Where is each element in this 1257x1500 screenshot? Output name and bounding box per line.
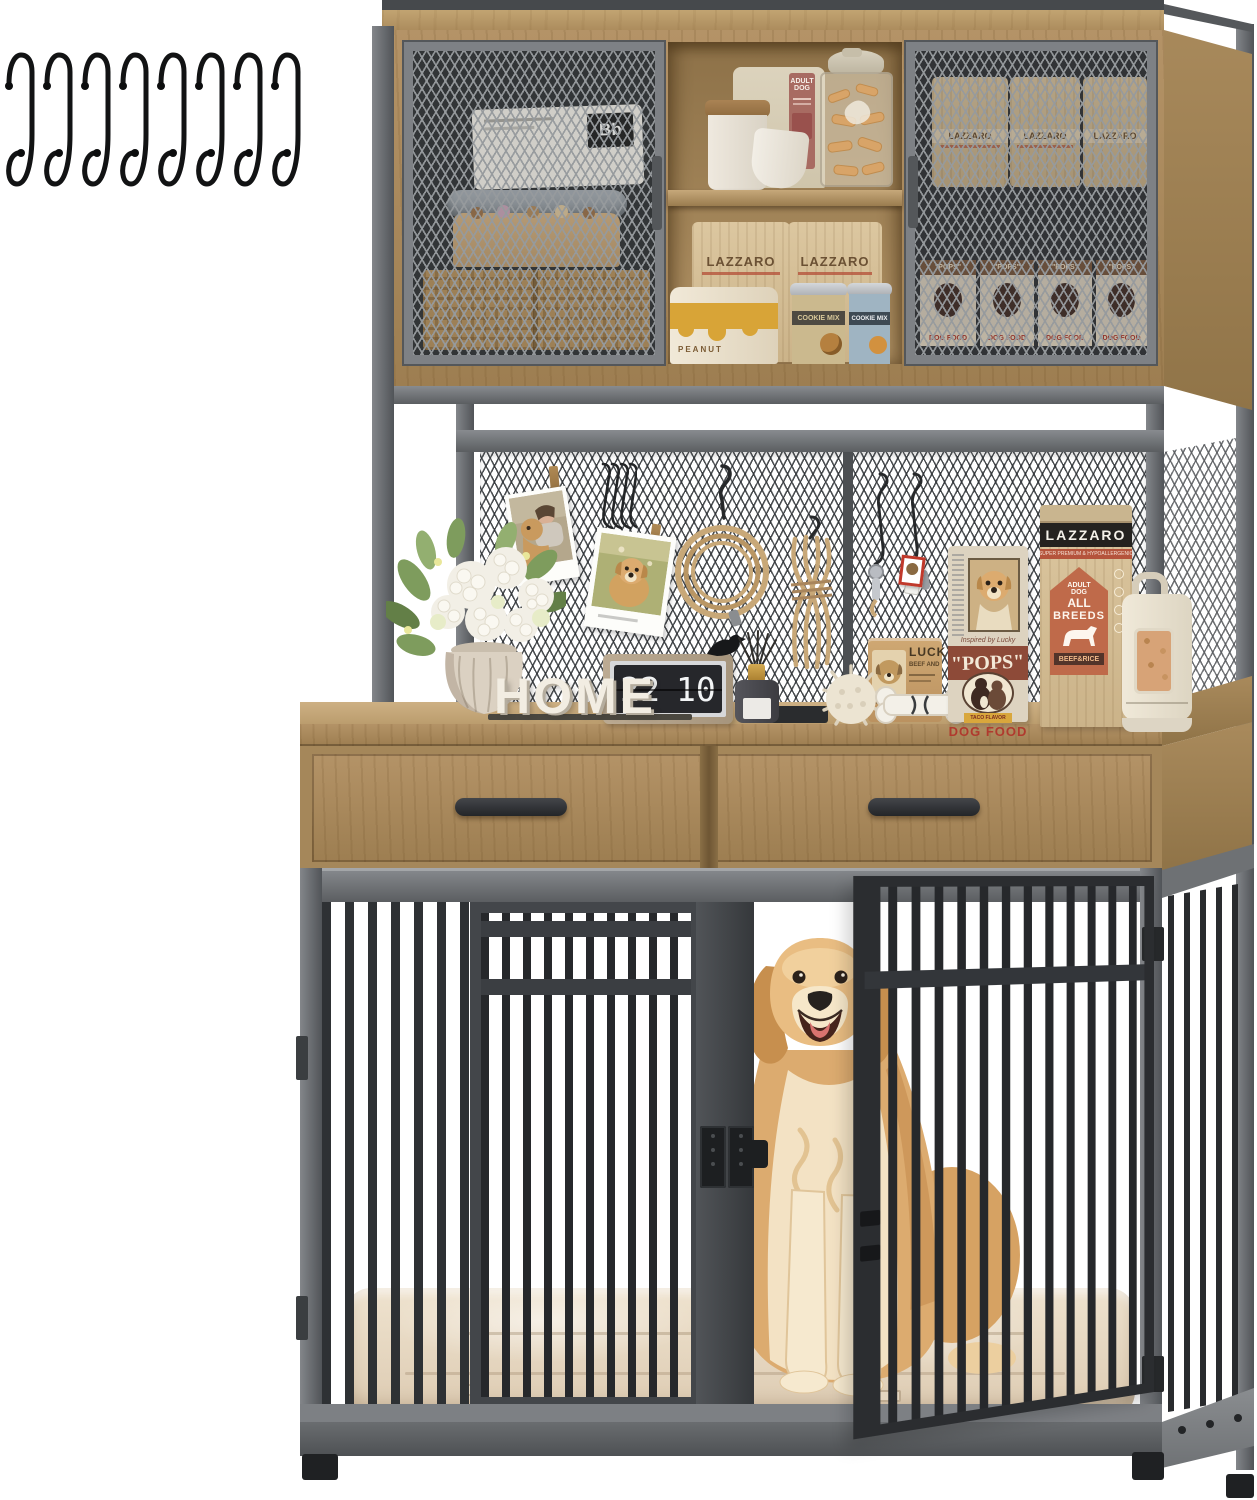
jar-glass-body [820,72,893,187]
diffuser-label [743,698,771,719]
lucky-can-line: BEEF AND [909,662,939,668]
crate-bottom-rail [300,1422,1162,1456]
bag-badge: ADULT DOG ALL BREEDS BEEF&RICE [1050,567,1108,675]
badge-line3: ALL [1050,596,1108,610]
crate-left-post [300,868,322,1456]
photo-caption-scribble [598,614,638,623]
right-door-handle [908,156,918,228]
kraft-bag-2-rule [798,272,872,275]
cubby-shelf [668,190,902,206]
tin2-label: COOKIE MIX [849,312,890,325]
badge-line4: BREEDS [1050,610,1108,622]
pops-can-photo [968,558,1020,632]
drawer-gap [700,746,718,870]
home-sign: HOME [494,674,694,720]
crate-foot-right [1132,1452,1164,1480]
badge-flavor: BEEF&RICE [1059,656,1099,663]
left-door-frame [404,42,664,364]
wire-hooks-cluster [595,460,637,538]
badge-line2: DOG [1050,589,1108,596]
badge-line1: ADULT [1050,582,1108,589]
bag-top-fold [1040,505,1132,523]
dog-food-bag: LAZZARO SUPER PREMIUM & HYPOALLERGENIC A… [1040,505,1132,727]
left-hinge-tab [296,1036,308,1080]
tin1-label: COOKIE MIX [792,311,845,325]
kraft-bag-1-rule [702,272,780,275]
bag-brand: LAZZARO [1046,527,1127,543]
treat-label-2: DOG [789,85,815,92]
mini-card-art [906,562,919,575]
latch-screw [711,1134,715,1138]
open-door-latch-knob [860,1210,880,1227]
hutch-top-board [382,10,1164,32]
pops-can-caption: Inspired by Lucky [952,634,1024,646]
photo-2-image [591,533,671,616]
treat-label-1: ADULT [789,73,815,85]
drawer-left-handle [455,798,567,816]
s-hooks-row [4,50,314,195]
side-rail-screw [1178,1426,1186,1434]
peanut-label: PEANUT [678,345,723,354]
pops-can-type: DOG FOOD [948,723,1028,739]
tin2-body: COOKIE MIX [849,294,890,364]
dog-front-leg-left [786,1190,826,1382]
pops-can: Inspired by Lucky "POPS" TACO FLAVOR DOG… [948,546,1028,722]
latch-plate-left [700,1126,726,1188]
hutch-right-side-panel [1164,10,1252,430]
key-hooks [862,470,940,620]
kraft-bag-1-brand: LAZZARO [692,253,790,269]
dispenser-seam [1126,702,1188,704]
latch-screw [739,1148,743,1152]
closed-door-crossbar-1 [481,921,691,937]
cookie-tin-1: COOKIE MIX [790,283,847,364]
bag-sub-band: SUPER PREMIUM & HYPOALLERGENIC [1040,549,1132,559]
latch-screw [739,1134,743,1138]
treat-label-line [793,98,811,100]
tin2-cookie [869,336,887,354]
mini-photo-card [898,555,925,588]
crate-side-bars [1168,884,1238,1412]
pegboard-top-rail [456,430,1164,452]
jar-knob [842,48,862,57]
rope-leash-on-hook [668,462,778,637]
peanut-jar: PEANUT [670,287,778,364]
hutch-right-door: LAZZARO LAZZARO LAZZARO "POPS" DOG FOOD … [906,42,1156,364]
polaroid-photo-2 [583,527,676,637]
hutch-open-cubby: ADULT DOG [668,42,902,364]
right-door-frame [906,42,1156,364]
pops-can-flavor: TACO FLAVOR [964,713,1012,723]
kraft-bag-2-brand: LAZZARO [788,253,882,269]
counter-front-edge [300,724,1162,746]
crate-foot-left [302,1454,338,1480]
dispenser-body [1122,594,1192,720]
latch-screw [739,1162,743,1166]
badge-dog-silhouette [1057,624,1101,648]
latch-plate-right [728,1126,754,1188]
drawer-right-handle [868,798,980,816]
dispenser-base [1122,718,1192,732]
drip [678,325,694,337]
treat-label-line [793,103,811,105]
left-hinge-tab [296,1296,308,1340]
bone-treats [822,74,891,185]
side-rail-screw [1234,1414,1242,1422]
tin1-cookie [820,333,842,355]
hutch-base-band [394,386,1164,404]
product-photo-scene: Bb ADULT [0,0,1257,1500]
latch-screw [711,1148,715,1152]
open-door-left-stile [865,887,881,1427]
pops-can-oval [962,672,1014,714]
dispenser-window [1134,628,1174,694]
bag-brand-band: LAZZARO [1040,523,1132,547]
hutch-left-door: Bb [404,42,664,364]
diffuser-bottle [735,680,779,723]
latch-screw [711,1162,715,1166]
badge-flavor-band: BEEF&RICE [1054,653,1104,665]
left-door-handle [652,156,662,230]
crate-open-door [853,876,1154,1439]
back-right-foot [1226,1474,1254,1498]
drip [742,325,758,336]
drip [708,325,726,341]
lucky-text-line [909,674,935,676]
latch-arm [752,1140,768,1168]
closed-door-crossbar-2 [481,979,691,995]
rope-hank-on-hook [775,515,845,673]
crate-fixed-panel-bars [322,902,470,1407]
crate-closed-door [470,902,702,1408]
pops-can-sidebar [952,552,964,636]
glass-treat-jar [820,50,893,187]
cookie-tin-2: COOKIE MIX [847,283,892,364]
pops-oval-dogs [964,674,1012,712]
tin1-body: COOKIE MIX [792,295,845,364]
side-rail-screw [1206,1420,1214,1428]
pops-can-dog [970,560,1018,630]
open-door-latch-knob [860,1244,880,1261]
bag-subtitle: SUPER PREMIUM & HYPOALLERGENIC [1040,551,1132,557]
treat-dispenser [1122,572,1192,732]
